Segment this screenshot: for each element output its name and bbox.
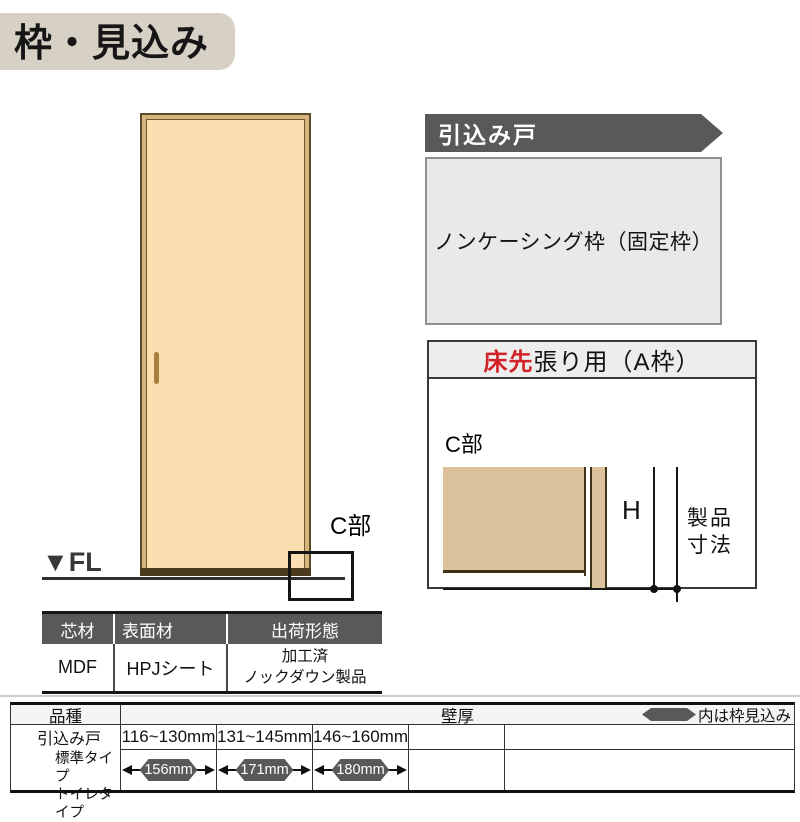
floor-line [443, 588, 678, 590]
spec-header-wall: 壁厚 内は枠見込み [121, 705, 794, 724]
floor-level-marker: ▼FL [42, 547, 102, 578]
a-frame-header-red-text: 床先 [483, 342, 533, 377]
wall-range-3: 146~160mm [313, 725, 408, 750]
wall-range-empty [409, 725, 504, 750]
legend-note: 内は枠見込み [698, 704, 791, 726]
product-dimension-label-line2: 寸法 [687, 532, 733, 559]
door-figure [140, 113, 311, 576]
section-divider [0, 695, 800, 697]
wall-range-2: 131~145mm [217, 725, 312, 750]
c-section-label: C部 [330, 506, 371, 541]
sliding-door-banner: 引込み戸 [425, 114, 723, 152]
materials-table: 芯材 表面材 出荷形態 MDF HPJシート 加工済 ノックダウン製品 [42, 611, 382, 694]
spec-product-type-toilet: トイレタイプ [11, 786, 120, 822]
a-frame-header-black-text: 張り用（A枠） [533, 342, 700, 377]
spec-column-empty-2 [505, 725, 794, 790]
legend: 内は枠見込み [642, 704, 791, 726]
h-dimension-dot [650, 585, 658, 593]
wall-spec-table: 品種 壁厚 内は枠見込み 引込み戸 標準タイプ トイレタイプ 116~130mm… [10, 702, 795, 793]
wall-range-1: 116~130mm [121, 725, 216, 750]
spec-table-header: 品種 壁厚 内は枠見込み [11, 705, 794, 725]
materials-table-row: MDF HPJシート 加工済 ノックダウン製品 [42, 644, 382, 691]
door-cross-section-panel [443, 467, 584, 573]
materials-shipping-line2: ノックダウン製品 [243, 668, 366, 689]
arrow-right-icon [205, 765, 215, 775]
arrow-left-icon [218, 765, 228, 775]
spec-product-name: 引込み戸 [11, 729, 120, 750]
door-handle-icon [154, 352, 159, 384]
materials-core-value: MDF [42, 644, 115, 691]
depth-row-empty [505, 750, 794, 790]
frame-type-panel: ノンケーシング枠（固定枠） [425, 157, 722, 325]
spec-header-wall-label: 壁厚 [441, 703, 474, 727]
frame-cross-section-strip [590, 467, 607, 590]
a-frame-section: 床先張り用（A枠） C部 H 製品 寸法 [427, 340, 757, 589]
product-dimension-label: 製品 寸法 [687, 505, 733, 559]
product-dimension-label-line1: 製品 [687, 505, 733, 532]
depth-badge-3: 180mm [332, 759, 390, 781]
arrow-right-icon [301, 765, 311, 775]
materials-table-header: 芯材 表面材 出荷形態 [42, 614, 382, 644]
h-dimension-label: H [622, 495, 641, 526]
spec-header-product: 品種 [11, 705, 121, 724]
materials-surface-value: HPJシート [115, 644, 228, 691]
spec-product-cell: 引込み戸 標準タイプ トイレタイプ [11, 725, 121, 790]
wall-range-empty [505, 725, 794, 750]
a-frame-diagram: C部 H 製品 寸法 [429, 379, 755, 585]
depth-row-3: 180mm [313, 750, 408, 790]
arrow-left-icon [314, 765, 324, 775]
depth-row-1: 156mm [121, 750, 216, 790]
depth-badge-2: 171mm [236, 759, 294, 781]
materials-header-shipping: 出荷形態 [228, 614, 382, 644]
spec-table-body: 引込み戸 標準タイプ トイレタイプ 116~130mm 156mm 131~14… [11, 725, 794, 790]
page-title: 枠・見込み [0, 13, 235, 70]
spec-column-empty-1 [409, 725, 505, 790]
materials-header-core: 芯材 [42, 614, 115, 644]
door-bottom-rail [140, 568, 311, 576]
spec-column-2: 131~145mm 171mm [217, 725, 313, 790]
c-detail-label: C部 [445, 427, 483, 459]
depth-row-2: 171mm [217, 750, 312, 790]
spec-column-3: 146~160mm 180mm [313, 725, 409, 790]
product-dimension-line [676, 467, 678, 602]
arrow-left-icon [122, 765, 132, 775]
door-edge-line [584, 467, 586, 576]
h-dimension-line [653, 467, 655, 590]
arrow-right-icon [397, 765, 407, 775]
materials-shipping-line1: 加工済 [282, 647, 329, 668]
product-dimension-dot [673, 585, 681, 593]
materials-header-surface: 表面材 [115, 614, 228, 644]
depth-row-empty [409, 750, 504, 790]
depth-badge-1: 156mm [140, 759, 198, 781]
spec-column-1: 116~130mm 156mm [121, 725, 217, 790]
materials-shipping-value: 加工済 ノックダウン製品 [228, 644, 382, 691]
spec-product-type-standard: 標準タイプ [11, 750, 120, 786]
c-section-callout-box [288, 551, 354, 601]
legend-hexagon-icon [642, 708, 696, 721]
a-frame-header: 床先張り用（A枠） [429, 342, 755, 379]
